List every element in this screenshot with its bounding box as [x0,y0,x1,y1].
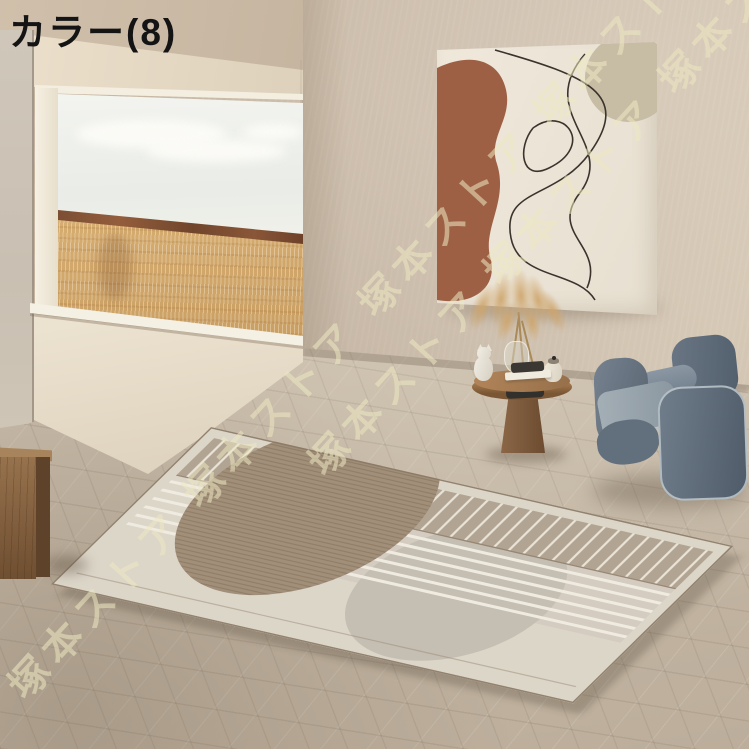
jar-knob [552,356,556,360]
wood-block [0,457,36,579]
wall-art [437,42,657,318]
armchair [593,330,749,512]
color-variant-label: カラー(8) [9,2,177,56]
cat-figurine-head [477,347,491,360]
wood-block-shadow [44,556,88,574]
art-terracotta-shape [437,60,507,301]
product-photo-scene: 塚本ストア 塚本ストア 塚本ストア 塚本ストア 塚本ストア 塚本ストア 塚本スト… [0,0,749,749]
armchair-right-arm [657,384,749,501]
art-beige-circle [585,42,657,122]
wood-block-side [36,457,50,577]
